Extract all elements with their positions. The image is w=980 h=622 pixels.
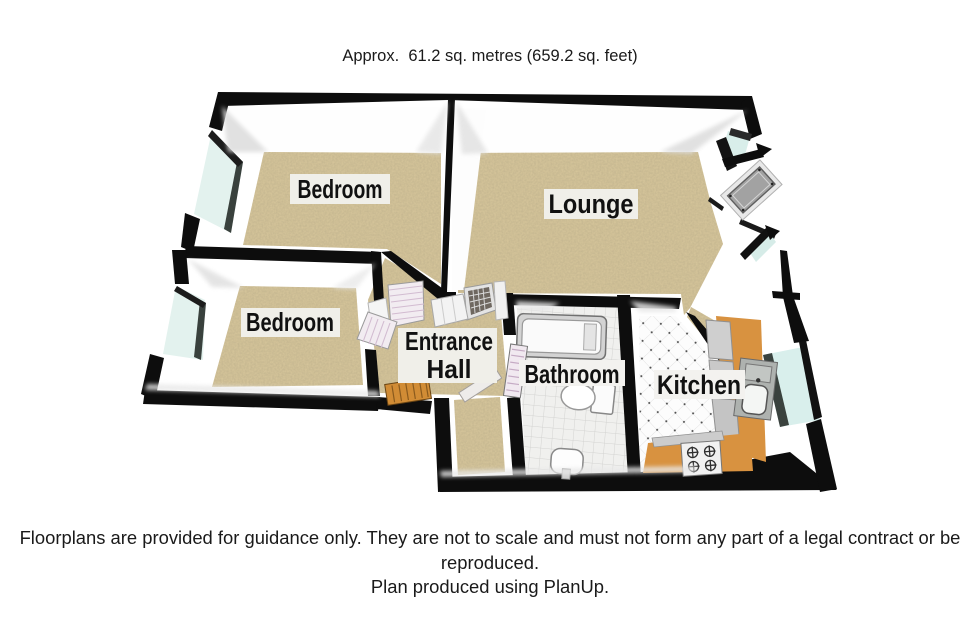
svg-text:Bedroom: Bedroom	[246, 307, 334, 337]
svg-text:Bathroom: Bathroom	[525, 359, 620, 389]
svg-text:Kitchen: Kitchen	[657, 370, 741, 400]
svg-text:Entrance: Entrance	[405, 326, 493, 356]
svg-text:Lounge: Lounge	[549, 189, 634, 219]
svg-text:Hall: Hall	[427, 354, 472, 384]
svg-text:Bedroom: Bedroom	[298, 174, 383, 204]
